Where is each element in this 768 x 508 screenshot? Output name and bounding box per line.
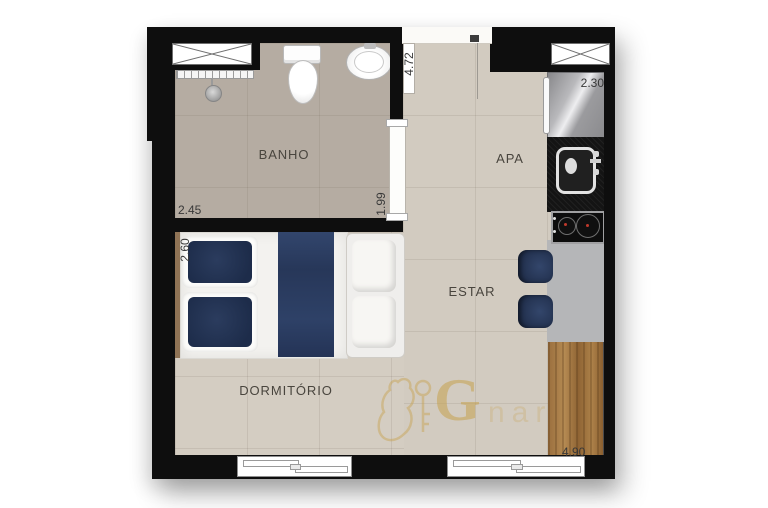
faucet-knob	[593, 151, 599, 157]
room-label-apa: APA	[482, 151, 538, 166]
kitchen-window-icon	[551, 43, 610, 65]
room-label-estar: ESTAR	[440, 284, 504, 299]
bedroom-window-icon	[237, 456, 352, 477]
kitchen-sink-highlight	[565, 158, 577, 174]
bathroom-door-opening	[389, 123, 406, 215]
wood-grain	[548, 342, 603, 458]
sofa-cushion	[352, 296, 396, 348]
burner-center	[564, 223, 567, 226]
window-latch	[511, 464, 524, 470]
bathroom-door-jamb-top	[386, 119, 408, 127]
shower-head-icon	[205, 85, 222, 102]
dim-label-banho-depth: 1.99	[374, 187, 388, 221]
entry-door-swing-line	[477, 43, 478, 99]
room-label-dormitorio: DORMITÓRIO	[230, 383, 342, 398]
wall-left	[152, 27, 175, 479]
kitchen-sink-icon	[556, 147, 596, 194]
window-pane	[516, 466, 581, 473]
dim-label-bed-width: 2.60	[178, 233, 192, 267]
living-window-icon	[447, 456, 585, 477]
cooktop-knob	[553, 230, 556, 233]
wood-counter	[548, 342, 606, 458]
bathroom-door-jamb-bottom	[386, 213, 408, 221]
window-latch	[290, 464, 301, 470]
wall-right	[604, 27, 615, 479]
faucet-knob	[593, 169, 599, 175]
window-pane	[295, 466, 349, 473]
floorplan: BANHO APA ESTAR DORMITÓRIO 2.45 1.99 4.7…	[152, 27, 615, 479]
shower-partition-icon	[176, 70, 254, 79]
burner-center	[586, 224, 589, 227]
bathroom-faucet-icon	[364, 43, 376, 49]
refrigerator-handle	[543, 77, 550, 134]
pillow	[182, 236, 258, 288]
bed-runner	[278, 232, 334, 357]
chair	[518, 250, 553, 283]
bathroom-sink-basin	[354, 51, 384, 73]
dining-counter	[547, 240, 606, 342]
kitchen-faucet-icon	[590, 159, 601, 163]
pillow	[182, 292, 258, 352]
pillow-case	[188, 241, 252, 283]
room-label-banho: BANHO	[239, 147, 329, 162]
pillow-case	[188, 297, 252, 347]
burner-icon	[558, 217, 576, 235]
dim-label-living-width: 4.90	[562, 445, 594, 459]
cooktop-knob	[553, 217, 556, 220]
wall-bathroom-bedroom	[152, 218, 403, 232]
entry-door-hinge-icon	[470, 35, 479, 42]
chair	[518, 295, 553, 328]
floorplan-page: BANHO APA ESTAR DORMITÓRIO 2.45 1.99 4.7…	[0, 0, 768, 508]
bathroom-window-icon	[172, 43, 252, 65]
dim-label-hall-depth: 4.72	[402, 47, 416, 81]
dim-label-kitchen-width: 2.30	[576, 76, 604, 90]
sofa-cushion	[352, 240, 396, 292]
dim-label-banho-width: 2.45	[178, 203, 212, 217]
